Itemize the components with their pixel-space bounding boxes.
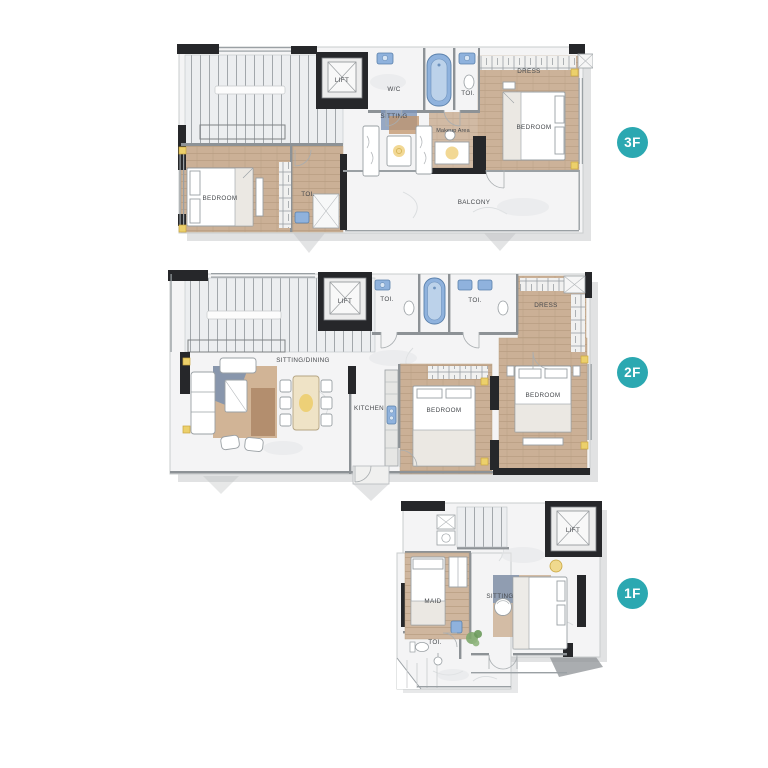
- accent-light-icon: [571, 162, 578, 169]
- bathtub-icon: [427, 54, 451, 106]
- nightstand-icon: [573, 366, 580, 376]
- 1f-sitting-label: SITTING: [486, 593, 513, 600]
- 3f-makeup-area: Makeup Area: [435, 128, 471, 164]
- bench-icon: [256, 178, 263, 216]
- washer-icon: [437, 531, 455, 545]
- bed-icon: [513, 577, 567, 649]
- nightstand-icon: [503, 82, 515, 89]
- 2f-dress-label: DRESS: [534, 302, 557, 309]
- 1f-lift-label: LIFT: [566, 527, 580, 534]
- cabinet-icon: [363, 126, 379, 176]
- bed-icon: [515, 366, 571, 432]
- sink-icon: [478, 280, 492, 290]
- armchair-icon: [220, 358, 256, 373]
- pouf-icon: [244, 437, 263, 452]
- closet-icon: [428, 366, 488, 379]
- kitchen-sink-icon: [387, 406, 396, 424]
- 2f-bedroom-right-label: BEDROOM: [526, 392, 561, 399]
- 3f-bedroom-left-label: BEDROOM: [203, 195, 238, 202]
- 2f-lift: LIFT: [318, 272, 372, 326]
- 3f-balcony-label: BALCONY: [458, 199, 491, 206]
- egg-chair-icon: [495, 599, 512, 616]
- floor-badge-1f-label: 1F: [624, 586, 641, 601]
- pouf-icon: [220, 435, 240, 450]
- vanity-desk-icon: [435, 142, 469, 164]
- closet-icon: [571, 294, 585, 352]
- accent-light-icon: [179, 225, 186, 232]
- wardrobe-icon: [279, 162, 291, 228]
- floor-plan-2f: LIFT TOI. TOI. DRESS: [163, 268, 599, 502]
- 2f-bedroom-middle-label: BEDROOM: [427, 407, 462, 414]
- toilet-icon: [410, 642, 429, 652]
- shower-icon: [313, 194, 339, 228]
- floorplan-canvas: LIFT W/C TOI. DRESS: [0, 0, 768, 768]
- floor-plan-1f: LIFT MAID TOI.: [393, 495, 611, 700]
- 1f-toi-label: TOI.: [428, 639, 442, 646]
- accent-light-icon: [481, 378, 488, 385]
- toilet-icon: [464, 75, 474, 89]
- 2f-kitchen-label: KITCHEN: [354, 405, 384, 412]
- dining-table-icon: [280, 376, 332, 430]
- nightstand-icon: [507, 366, 514, 376]
- accent-light-icon: [183, 358, 190, 365]
- sink-icon: [458, 280, 472, 290]
- accent-light-icon: [481, 458, 488, 465]
- 3f-toi-bottom-label: TOI.: [301, 191, 315, 198]
- accent-light-icon: [183, 426, 190, 433]
- coffee-table-icon: [387, 136, 411, 166]
- floor-badge-3f: 3F: [617, 127, 648, 158]
- accent-light-icon: [581, 442, 588, 449]
- gold-lamp-icon: [550, 560, 562, 572]
- 1f-staircase: [457, 507, 507, 547]
- accent-light-icon: [581, 356, 588, 363]
- 3f-wc-label: W/C: [387, 86, 400, 93]
- rug-icon: [251, 388, 275, 436]
- 2f-toi-right-label: TOI.: [468, 297, 482, 304]
- 2f-sitting-dining-label: SITTING/DINING: [276, 357, 330, 364]
- 3f-sitting-label: SITTING: [380, 113, 407, 120]
- 2f-toi-left-label: TOI.: [380, 296, 394, 303]
- toilet-icon: [498, 301, 508, 315]
- floor-badge-2f-label: 2F: [624, 365, 641, 380]
- coffee-table-icon: [225, 380, 247, 412]
- floor-badge-2f: 2F: [617, 357, 648, 388]
- 3f-lift-label: LIFT: [335, 77, 349, 84]
- 3f-dress-label: DRESS: [517, 68, 540, 75]
- accent-light-icon: [179, 147, 186, 154]
- cabinet-icon: [416, 126, 432, 174]
- bench-icon: [523, 438, 563, 445]
- 3f-bedroom-right-label: BEDROOM: [517, 124, 552, 131]
- bed-icon: [411, 557, 445, 625]
- 2f-lift-label: LIFT: [338, 298, 352, 305]
- sink-icon: [295, 212, 309, 223]
- accent-light-icon: [571, 69, 578, 76]
- 3f-balcony: BALCONY: [458, 199, 491, 206]
- sink-icon: [451, 621, 462, 633]
- bed-icon: [413, 386, 475, 466]
- 3f-toi-top-label: TOI.: [461, 90, 475, 97]
- 1f-lift: LIFT: [545, 501, 602, 557]
- 1f-maid-label: MAID: [424, 598, 441, 605]
- floor-badge-1f: 1F: [617, 578, 648, 609]
- sofa-icon: [191, 372, 215, 434]
- toilet-icon: [404, 301, 414, 315]
- 3f-makeup-label: Makeup Area: [436, 128, 470, 134]
- bathtub-icon: [424, 278, 445, 324]
- 3f-ac-ledge: [578, 54, 593, 68]
- 3f-lift: LIFT: [316, 52, 368, 104]
- floor-plan-3f: LIFT W/C TOI. DRESS: [173, 42, 593, 254]
- floor-badge-3f-label: 3F: [624, 135, 641, 150]
